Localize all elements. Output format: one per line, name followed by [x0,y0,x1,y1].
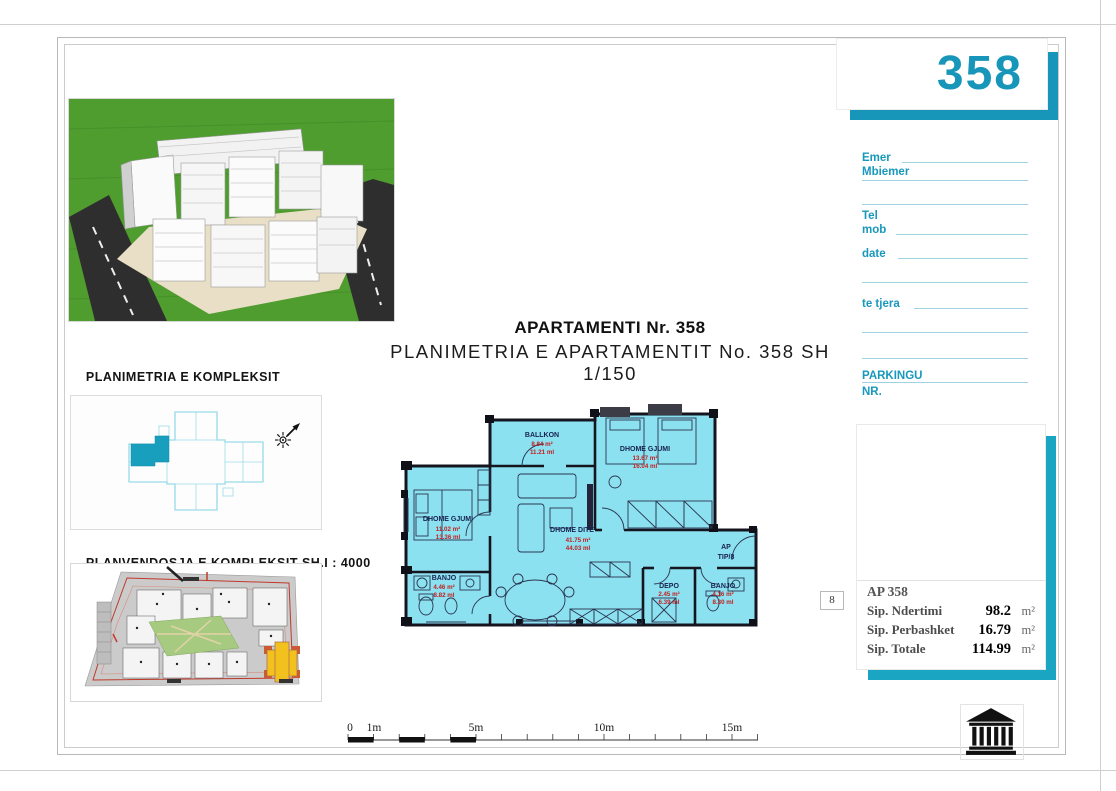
contact-form: Emer Mbiemer Tel mob date te tjera PARKI… [862,152,1028,412]
field-line [862,382,1028,383]
summary-row-label: Sip. Totale [867,641,972,657]
room-label-ballkon: BALLKON [525,432,559,439]
complex-3d-render [68,98,395,322]
room-area-gjumi1: 11.02 m² [436,526,460,533]
room-area-ballkon: 8.84 m² [531,441,552,448]
summary-row-label: Sip. Perbashket [867,622,978,638]
form-field-date: date [862,248,886,260]
scale-label-10m: 10m [594,722,615,734]
tv-unit [587,484,593,530]
ap-tip-label-2: TIP/8 [718,554,735,561]
sheet-right-edge [1100,0,1101,791]
room-perimeter-dite: 44.03 ml [566,545,591,552]
scale-label-5m: 5m [469,722,484,734]
summary-row-label: Sip. Ndertimi [867,603,986,619]
form-field-mbiemer: Mbiemer [862,166,909,178]
room-label-gjumi2: DHOME GJUMI [620,446,670,453]
form-field-tel: Tel [862,210,878,222]
apartment-number: 358 [837,39,1047,109]
section-plan-drawing [71,396,321,529]
form-field-emer: Emer [862,152,891,164]
sheet-top-edge [0,24,1116,25]
summary-row-unit: m² [1011,642,1035,657]
shaft [600,407,630,417]
developer-logo-box [960,704,1024,760]
section-plan [70,395,322,530]
room-perimeter-banjo2: 8.30 ml [713,599,734,606]
room-label-banjo2: BANJO [711,583,736,590]
sheet-marker: 8 [820,591,844,610]
field-line [862,180,1028,181]
highlighted-building-yellow [264,642,300,682]
room-perimeter-gjumi1: 13.36 ml [436,534,461,541]
page-subtitle: PLANIMETRIA E APARTAMENTIT No. 358 SH 1/… [360,341,860,385]
summary-row-value: 98.2 [986,603,1011,620]
room-area-dite: 41.75 m² [566,537,591,544]
field-line [862,204,1028,205]
room-label-banjo1: BANJO [432,575,457,582]
scale-label-0: 0 [347,722,353,734]
apartment-number-box: 358 [836,38,1048,110]
room-area-gjumi2: 13.67 m² [633,455,658,462]
sheet-bottom-edge [0,770,1116,771]
form-field-te-tjera: te tjera [862,298,900,310]
shaft [648,404,682,415]
complex-3d-render-illustration [69,99,394,321]
site-plan [70,563,322,702]
scale-label-15m: 15m [722,722,743,734]
apartment-floorplan: BALLKON DHOME GJUMI DHOME GJUMI DHOME DI… [396,400,790,660]
room-area-depo: 2.45 m² [658,591,679,598]
area-summary-rows: AP 358 Sip. Ndertimi 98.2 m² Sip. Perbas… [857,580,1045,659]
summary-row-unit: m² [1011,604,1035,619]
room-perimeter-ballkon: 11.21 ml [530,449,554,456]
parking-strip [97,602,111,664]
area-summary-box: AP 358 Sip. Ndertimi 98.2 m² Sip. Perbas… [856,424,1046,670]
field-line [862,282,1028,283]
plan-sheet: PLANIMETRIA E KOMPLEKSIT SEKSIONI 3 SH 1… [0,0,1116,791]
summary-title: AP 358 [857,580,1045,602]
summary-row: Sip. Ndertimi 98.2 m² [857,602,1045,621]
room-label-gjumi1: DHOME GJUMI [423,516,473,523]
summary-row-value: 114.99 [972,641,1011,658]
page-subtitle-text: PLANIMETRIA E APARTAMENTIT No. 358 SH 1/… [390,341,830,384]
scale-label-1m: 1m [367,722,382,734]
room-label-depo: DEPO [659,583,679,590]
summary-row: Sip. Totale 114.99 m² [857,640,1045,659]
room-label-dite: DHOME DITE [550,527,594,534]
scale-bar: 0 1m 5m 10m 15m [345,720,785,750]
field-line [896,234,1028,235]
summary-row: Sip. Perbashket 16.79 m² [857,621,1045,640]
page-title: APARTAMENTI Nr. 358 [380,318,840,338]
room-area-banjo1: 4.46 m² [433,584,454,591]
summary-row-value: 16.79 [978,622,1011,639]
section-title-line1: PLANIMETRIA E KOMPLEKSIT [86,370,280,384]
form-field-parkingu: PARKINGU [862,370,922,382]
ap-tip-label-1: AP [721,544,731,551]
room-perimeter-depo: 6.39 ml [659,599,680,606]
field-line [898,258,1028,259]
field-line [902,162,1028,163]
field-line [914,308,1028,309]
room-perimeter-gjumi2: 16.04 ml [633,463,658,470]
room-area-banjo2: 4.16 m² [712,591,733,598]
site-plan-drawing [71,564,321,701]
form-field-mob: mob [862,224,886,236]
bank-building-icon [961,705,1021,757]
summary-row-unit: m² [1011,623,1035,638]
room-perimeter-banjo1: 8.82 ml [434,592,455,599]
field-line [862,332,1028,333]
page-title-text: APARTAMENTI Nr. 358 [514,318,705,337]
field-line [862,358,1028,359]
form-field-nr: NR. [862,386,882,398]
